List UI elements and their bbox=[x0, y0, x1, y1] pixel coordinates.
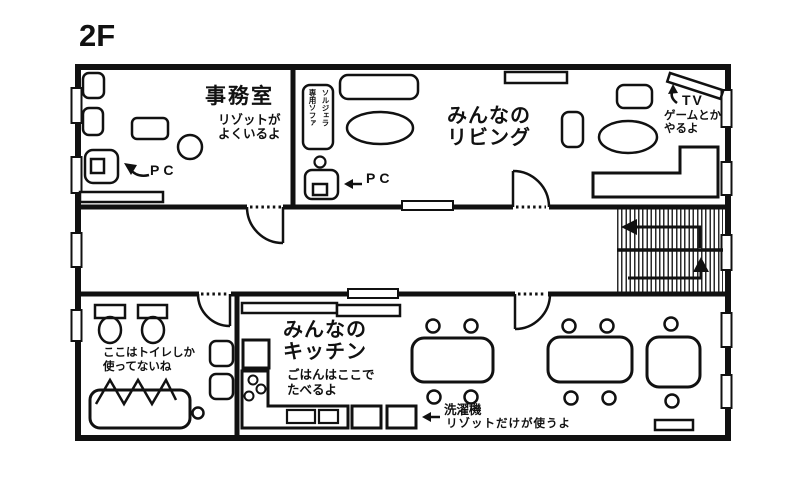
washer-note: リゾットだけが使うよ bbox=[446, 418, 571, 432]
shelves bbox=[80, 72, 693, 430]
window-right-icon bbox=[722, 90, 732, 127]
living-pc-label: PC bbox=[366, 170, 393, 186]
door-swing-arc bbox=[198, 294, 230, 326]
kitchen-room-label: みんなの キッチン bbox=[283, 319, 367, 363]
washing-machine bbox=[352, 406, 381, 428]
living-pc-stool bbox=[315, 157, 326, 168]
bathtub-water-zigzag-icon bbox=[96, 380, 176, 404]
floor-title: 2F bbox=[79, 18, 115, 54]
stairs-arrow-upper bbox=[634, 227, 700, 248]
stairs-arrow-lower bbox=[628, 266, 701, 278]
office-table bbox=[132, 118, 168, 139]
kitchen-appliance bbox=[243, 340, 269, 368]
toilet-bowl bbox=[99, 317, 121, 343]
door-swing-arc bbox=[247, 207, 283, 243]
washing-machine bbox=[387, 406, 416, 428]
sink bbox=[210, 374, 233, 399]
dining-chair bbox=[563, 320, 576, 333]
office-chair bbox=[83, 108, 103, 135]
bathroom-door bbox=[198, 294, 230, 326]
window-left-icon bbox=[72, 88, 82, 123]
wall-opening-marker bbox=[402, 201, 453, 210]
kitchen-shelf bbox=[242, 303, 337, 313]
kitchen-note: ごはんはここで たべるよ bbox=[287, 368, 375, 397]
dining-chair bbox=[666, 395, 679, 408]
l-shaped-sofa bbox=[593, 147, 718, 197]
office-pc-label: PC bbox=[150, 162, 177, 178]
living-sofa bbox=[340, 75, 418, 99]
washer-arrow-head-icon bbox=[422, 412, 431, 422]
kitchen-shelf bbox=[655, 420, 693, 430]
outer-wall bbox=[78, 67, 728, 438]
dining-chair bbox=[428, 391, 441, 404]
stairs-arrow-up-head-icon bbox=[693, 257, 709, 272]
dining-table bbox=[647, 337, 700, 387]
window-right-icon bbox=[722, 375, 732, 408]
living-table bbox=[599, 121, 657, 153]
pc-monitor-icon bbox=[91, 159, 104, 173]
sorgella-sofa-tag: ソルジェラ 専用ソファ bbox=[306, 89, 332, 147]
door-swing-arc bbox=[513, 171, 549, 207]
burner-icon bbox=[249, 376, 258, 385]
office-room-label: 事務室 bbox=[205, 80, 274, 110]
washer-label: 洗濯機 bbox=[444, 404, 482, 418]
burner-icon bbox=[245, 392, 254, 401]
window-right-icon bbox=[722, 235, 732, 270]
dining-chair bbox=[427, 320, 440, 333]
dining-chair bbox=[601, 320, 614, 333]
stairs bbox=[617, 219, 723, 278]
door-swing-arc bbox=[515, 294, 550, 329]
window-left-icon bbox=[72, 157, 82, 193]
floor-plan-drawing bbox=[0, 0, 800, 486]
window-left-icon bbox=[72, 310, 82, 341]
stairs-arrow-left-head-icon bbox=[621, 219, 637, 235]
office-shelf bbox=[80, 192, 163, 202]
dining-chair bbox=[665, 318, 678, 331]
toilet-bowl bbox=[142, 317, 164, 343]
living-chair bbox=[562, 112, 583, 147]
window-right-icon bbox=[722, 313, 732, 347]
sink bbox=[210, 341, 233, 366]
floor-plan: 2F 事務室 リゾットが よくいるよ PC ソルジェラ 専用ソファ みんなの リ… bbox=[0, 0, 800, 486]
kitchen-door bbox=[515, 294, 550, 329]
living-chair bbox=[617, 85, 652, 108]
dining-table bbox=[412, 338, 493, 382]
office-door bbox=[247, 207, 283, 243]
kitchen-shelf bbox=[337, 305, 400, 316]
pc-arrow-head-icon bbox=[344, 179, 353, 189]
dining-chair bbox=[565, 392, 578, 405]
dining-chair bbox=[465, 320, 478, 333]
living-table bbox=[347, 112, 413, 144]
window-right-icon bbox=[722, 162, 732, 195]
office-furniture bbox=[83, 73, 202, 183]
pc-monitor-icon bbox=[313, 184, 327, 195]
burner-icon bbox=[257, 385, 266, 394]
dining-chair bbox=[465, 391, 478, 404]
living-shelf bbox=[505, 72, 567, 83]
tv-note: ゲームとか やるよ bbox=[664, 110, 721, 135]
bathroom-note: ここはトイレしか 使ってないね bbox=[103, 347, 195, 374]
wall-opening-marker bbox=[348, 289, 398, 298]
kitchen-sink bbox=[287, 410, 315, 423]
living-door bbox=[513, 171, 549, 207]
kitchen-sink bbox=[319, 410, 338, 423]
office-chair bbox=[83, 73, 104, 98]
dining-chair bbox=[603, 392, 616, 405]
office-stool bbox=[178, 135, 202, 159]
window-left-icon bbox=[72, 233, 82, 267]
tv-label: TV bbox=[682, 92, 704, 108]
drain bbox=[193, 408, 204, 419]
walls bbox=[78, 67, 728, 438]
living-room-label: みんなの リビング bbox=[447, 105, 531, 149]
dining-table bbox=[548, 337, 632, 382]
office-note: リゾットが よくいるよ bbox=[218, 114, 281, 141]
